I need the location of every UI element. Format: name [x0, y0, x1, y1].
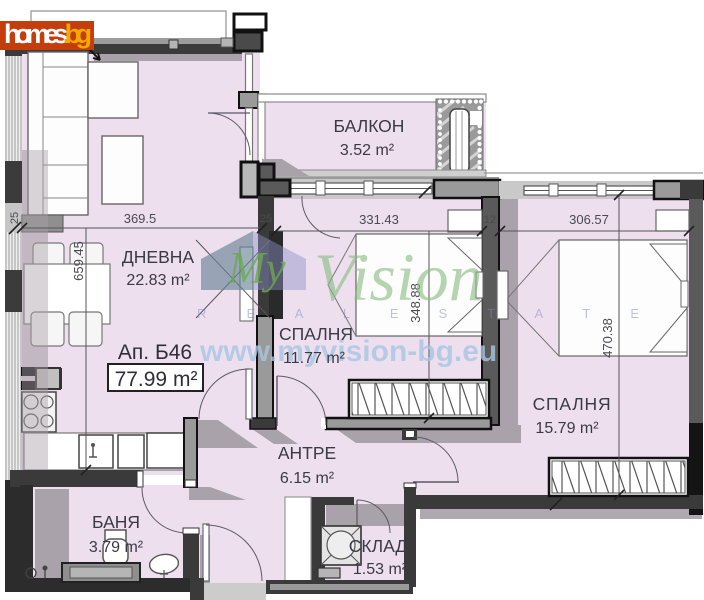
svg-text:15.79 m²: 15.79 m²	[535, 420, 599, 437]
svg-text:11.77 m²: 11.77 m²	[283, 350, 346, 367]
svg-text:331.43: 331.43	[359, 212, 399, 227]
svg-text:СПАЛНЯ: СПАЛНЯ	[533, 394, 612, 414]
svg-text:My: My	[227, 243, 285, 293]
svg-text:77.99 m²: 77.99 m²	[115, 368, 198, 391]
svg-text:3.52 m²: 3.52 m²	[340, 142, 395, 159]
svg-text:6.15 m²: 6.15 m²	[280, 470, 335, 487]
svg-text:БАЛКОН: БАЛКОН	[334, 116, 405, 136]
svg-text:369.5: 369.5	[124, 211, 157, 226]
svg-text:СКЛАД: СКЛАД	[349, 536, 408, 556]
svg-text:1.53 m²: 1.53 m²	[353, 561, 408, 578]
svg-text:СПАЛНЯ: СПАЛНЯ	[279, 324, 353, 344]
svg-text:ДНЕВНА: ДНЕВНА	[122, 247, 194, 267]
svg-text:25: 25	[260, 213, 272, 225]
svg-text:homes.bg: homes.bg	[4, 19, 92, 49]
svg-text:659.45: 659.45	[71, 241, 86, 281]
svg-text:Ап. Б46: Ап. Б46	[118, 341, 192, 364]
svg-text:470.38: 470.38	[600, 318, 615, 358]
svg-text:БАНЯ: БАНЯ	[92, 512, 140, 532]
svg-text:22.83 m²: 22.83 m²	[126, 272, 190, 289]
svg-text:25: 25	[9, 212, 21, 224]
svg-text:АНТРЕ: АНТРЕ	[278, 443, 336, 463]
svg-text:12: 12	[484, 214, 496, 226]
svg-text:Vision: Vision	[314, 239, 483, 315]
svg-text:306.57: 306.57	[569, 212, 609, 227]
svg-text:3.79 m²: 3.79 m²	[89, 539, 144, 556]
